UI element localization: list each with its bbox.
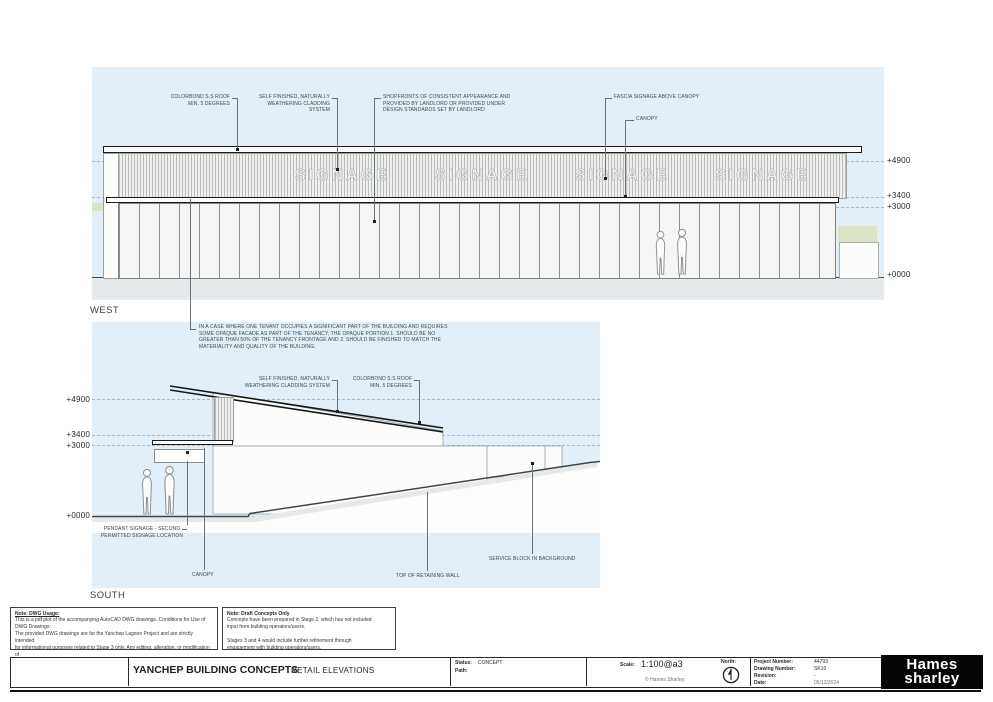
leader-arrow xyxy=(531,462,534,465)
person-silhouette xyxy=(136,468,158,517)
south-annotation-colorbond-roof: COLORBOND S.S ROOF MIN. 5 DEGREES xyxy=(338,376,412,389)
draft-concepts-note: Note: Draft Concepts Only Concepts have … xyxy=(222,607,396,650)
status-label: Status: xyxy=(455,660,472,666)
status-value: CONCEPT xyxy=(478,660,502,666)
revision-label: Revision: xyxy=(754,673,777,679)
scale-label: Scale: xyxy=(620,662,635,668)
drawing-number-label: Drawing Number: xyxy=(754,666,796,672)
south-level-4900: +4900 xyxy=(55,395,90,404)
leader-line xyxy=(427,492,428,571)
hames-sharley-logo: Hames sharley xyxy=(881,655,983,689)
pendant-marker xyxy=(186,451,189,454)
south-level-3000: +3000 xyxy=(55,441,90,450)
draft-concepts-note-body: Concepts have been prepared in Stage 2, … xyxy=(227,617,391,652)
date-value: 05/12/2024 xyxy=(814,680,839,686)
leader-arrow xyxy=(336,410,339,413)
south-pendant-signage-box xyxy=(154,449,205,463)
south-elevation-label: SOUTH xyxy=(90,590,125,601)
person-silhouette xyxy=(158,465,181,517)
south-annotation-retaining-wall: TOP OF RETAINING WALL xyxy=(396,573,476,580)
leader-tick xyxy=(182,529,187,530)
project-title: YANCHEP BUILDING CONCEPTS xyxy=(133,664,298,676)
title-block-divider xyxy=(750,657,751,686)
south-elevation-linework xyxy=(0,0,993,650)
path-label: Path: xyxy=(455,668,468,674)
title-block-divider xyxy=(450,657,451,686)
dwg-usage-note: Note: DWG Usage: This is a pdf plot of t… xyxy=(10,607,218,650)
scale-value: 1:100@a3 xyxy=(641,659,683,669)
leader-arrow xyxy=(418,421,421,424)
project-number-label: Project Number: xyxy=(754,659,793,665)
date-label: Date: xyxy=(754,680,767,686)
south-annotation-cladding: SELF FINISHED, NATURALLY WEATHERING CLAD… xyxy=(236,376,330,389)
south-level-0000: +0000 xyxy=(55,511,90,520)
sheet-title: RETAIL ELEVATIONS xyxy=(291,666,375,675)
title-block-divider xyxy=(586,657,587,686)
north-label: North: xyxy=(721,659,736,665)
project-number-value: 44793 xyxy=(814,659,828,665)
leader-line xyxy=(419,380,420,423)
south-level-3400: +3400 xyxy=(55,430,90,439)
south-canopy-band xyxy=(152,440,233,445)
north-arrow-icon xyxy=(722,666,740,684)
revision-value: - xyxy=(814,673,816,679)
copyright-text: © Hames Sharley: xyxy=(645,677,686,683)
south-annotation-canopy: CANOPY xyxy=(192,572,232,579)
title-block-divider xyxy=(128,657,129,686)
logo-line-2: sharley xyxy=(904,672,959,686)
drawing-number-value: SK10 xyxy=(814,666,826,672)
drawing-sheet: SIGNAGE SIGNAGE SIGNAGE SIGNAGE +4900 +3… xyxy=(0,0,993,702)
south-annotation-service-block: SERVICE BLOCK IN BACKGROUND xyxy=(489,556,579,563)
leader-line xyxy=(187,461,188,525)
leader-line xyxy=(532,464,533,554)
leader-line xyxy=(204,448,205,570)
south-annotation-pendant-signage: PENDANT SIGNAGE - SECOND PERMITTED SIGNA… xyxy=(98,526,186,539)
south-cladding-strip xyxy=(214,397,234,442)
sheet-bottom-rule xyxy=(10,690,981,692)
